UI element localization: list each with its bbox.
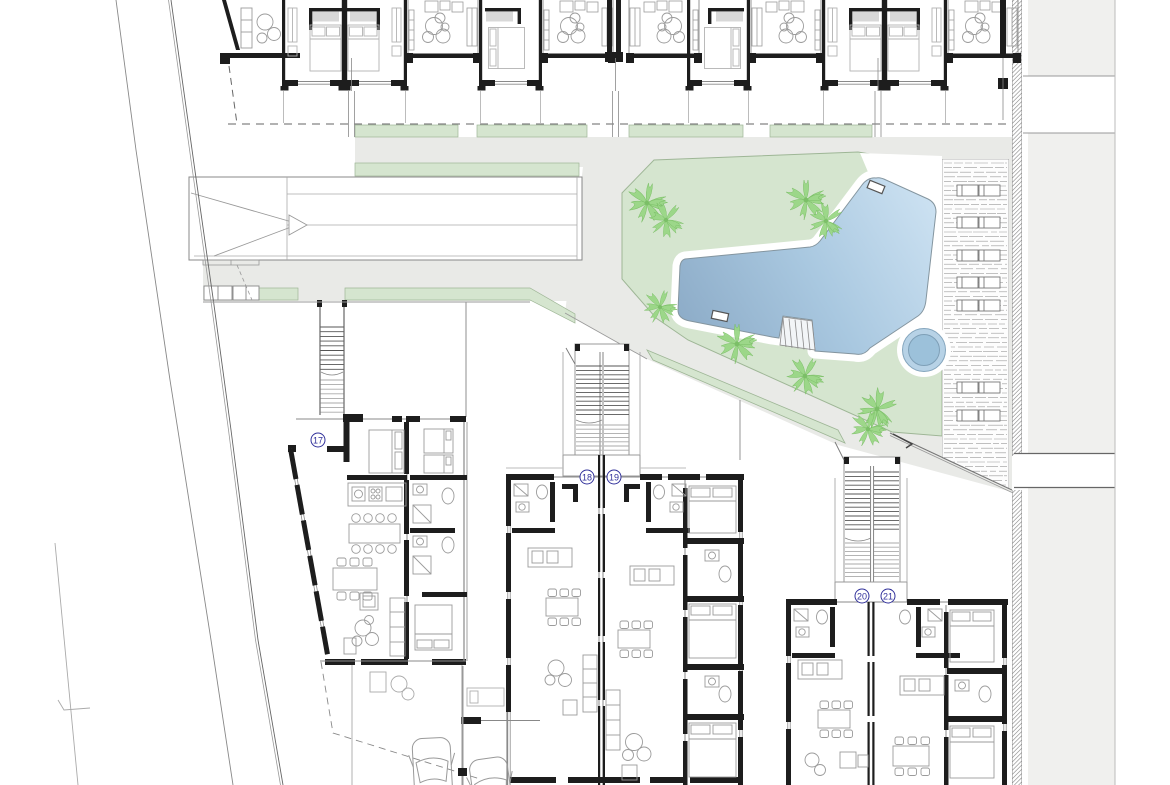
svg-text:18: 18: [582, 473, 592, 483]
svg-text:21: 21: [883, 592, 893, 602]
svg-text:20: 20: [857, 592, 867, 602]
svg-text:17: 17: [313, 436, 323, 446]
svg-text:19: 19: [609, 473, 619, 483]
